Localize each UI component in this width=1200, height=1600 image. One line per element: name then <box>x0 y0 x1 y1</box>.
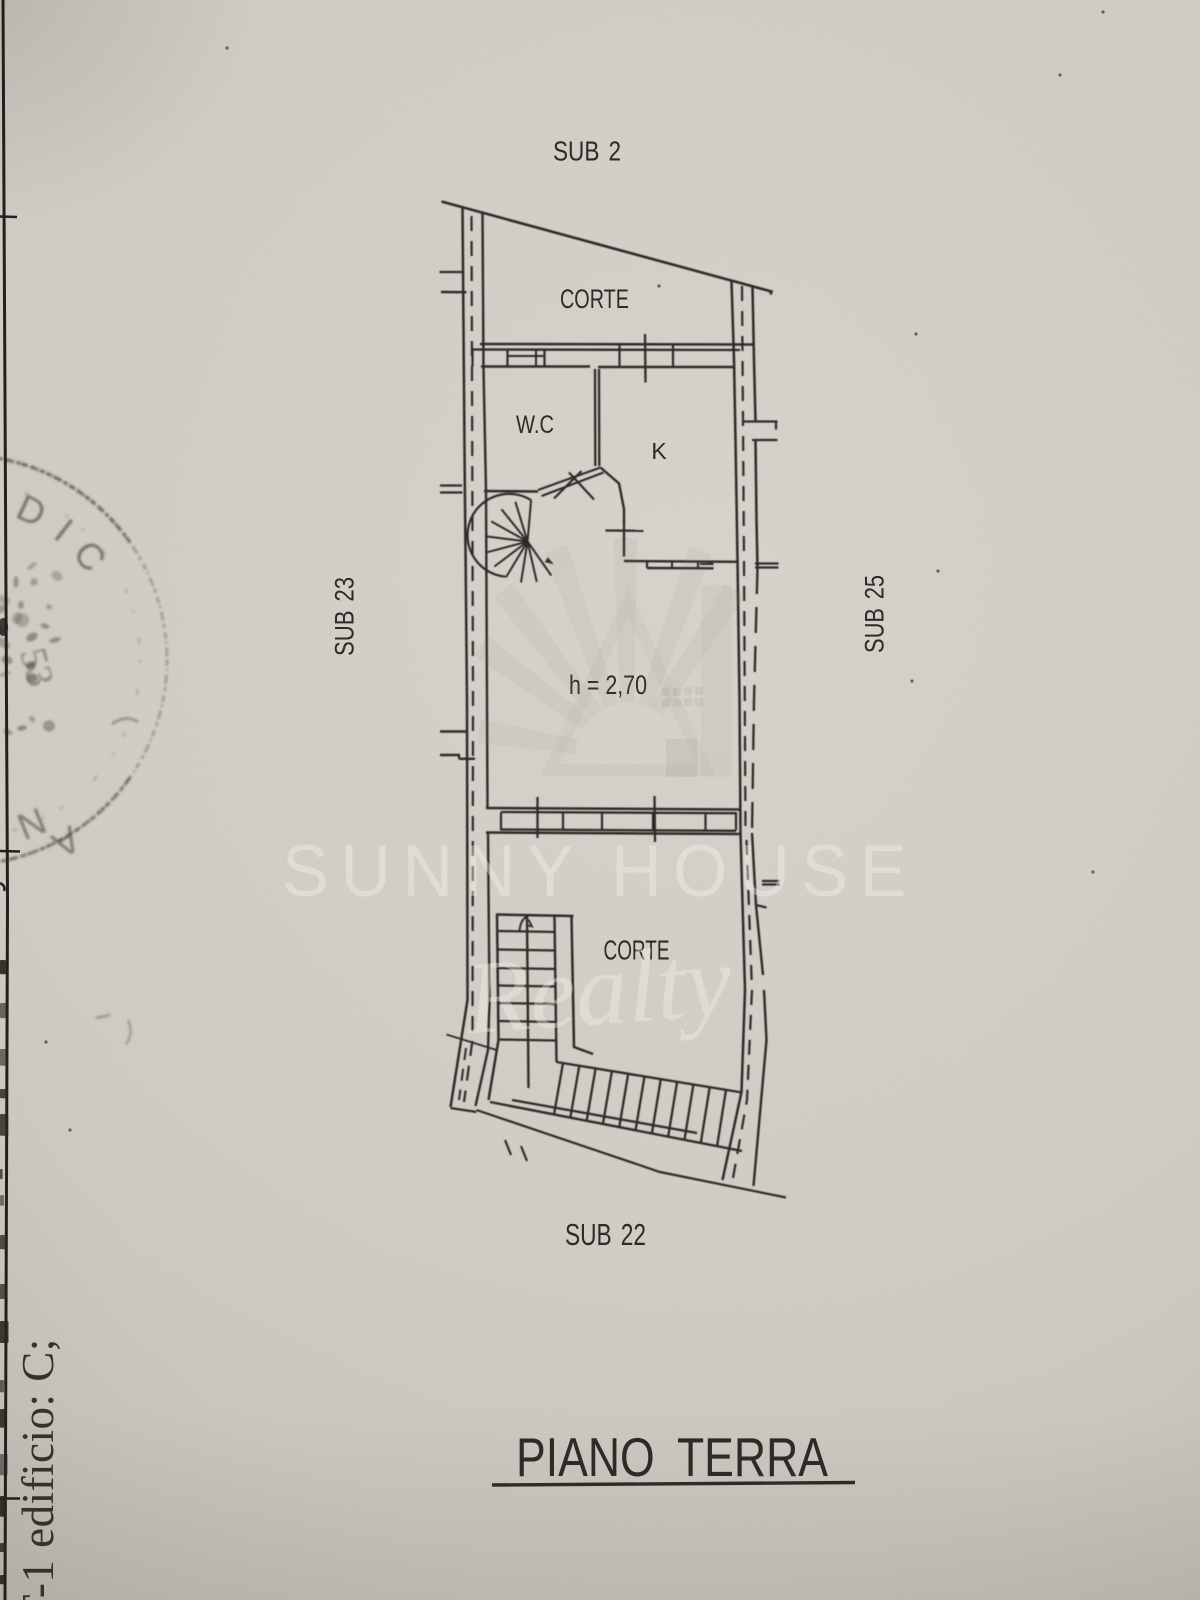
svg-text:CORTE: CORTE <box>560 284 629 314</box>
svg-text:W.C: W.C <box>516 411 554 439</box>
svg-text:SUNNY HOUSE: SUNNY HOUSE <box>282 831 918 912</box>
svg-text:SUB 22: SUB 22 <box>565 1217 646 1252</box>
svg-text:SUB 23: SUB 23 <box>330 577 360 656</box>
svg-text:SUB 25: SUB 25 <box>860 575 890 653</box>
svg-text:Realty: Realty <box>461 923 736 1056</box>
svg-text:T-1 edificio: C;: T-1 edificio: C; <box>13 1338 63 1600</box>
svg-text:SUB 2: SUB 2 <box>553 136 621 167</box>
svg-text:K: K <box>651 438 667 464</box>
svg-text:PIANO TERRA: PIANO TERRA <box>516 1426 828 1488</box>
